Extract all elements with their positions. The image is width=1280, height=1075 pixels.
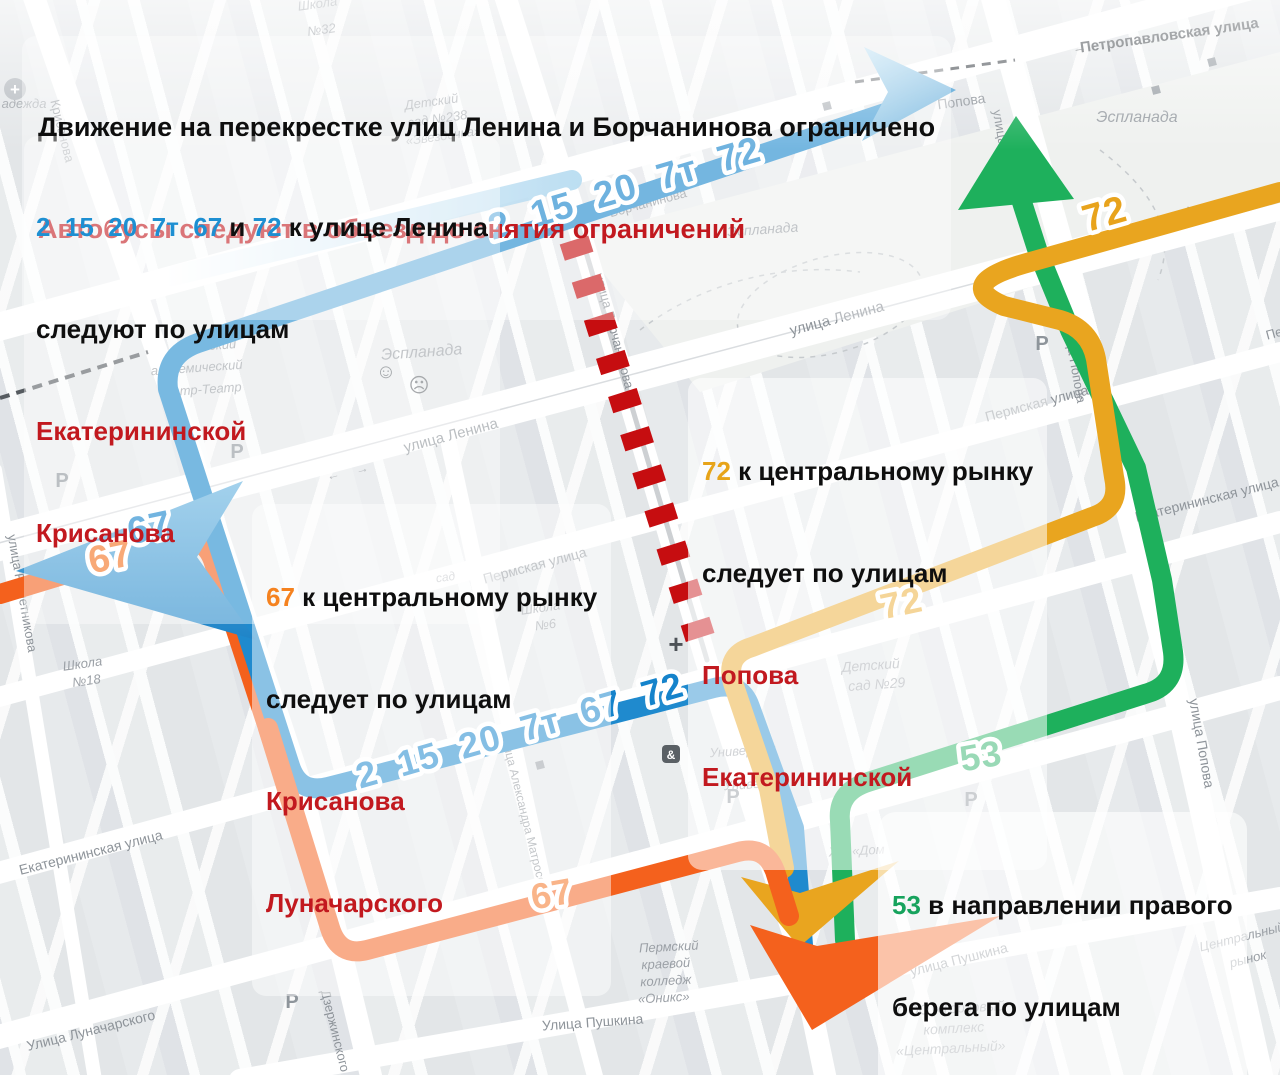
map-label: Пермский xyxy=(639,937,699,955)
street-name: Крисанова xyxy=(266,784,597,818)
notice-line: берега по улицам xyxy=(892,990,1233,1024)
notice-text: к центральному рынку xyxy=(731,456,1033,486)
street-name: Екатерининской xyxy=(702,760,1033,794)
map-label: Пермская xyxy=(1264,313,1280,343)
route-number-67: 67 xyxy=(266,582,295,612)
notice-text: к центральному рынку xyxy=(295,582,597,612)
notice-line: следуют по улицам xyxy=(36,312,488,346)
map-label: краевой xyxy=(641,955,691,973)
conjunction: и xyxy=(222,212,252,242)
notice-line: следует по улицам xyxy=(266,682,597,716)
notice-line: 53 в направлении правого xyxy=(892,888,1233,922)
notice-route-67: 67 к центральному рынку следует по улица… xyxy=(252,504,611,996)
street-name: Екатерининской xyxy=(36,414,488,448)
route-number-72: 72 xyxy=(253,212,282,242)
route-numbers-blue: 2 15 20 7т 67 xyxy=(36,212,222,242)
shop-amp-icon: & xyxy=(667,748,676,762)
street-name: Луначарского xyxy=(266,886,597,920)
route-number-53: 53 xyxy=(892,890,921,920)
notice-route-53: 53 в направлении правого берега по улица… xyxy=(878,812,1247,1075)
notice-text: в направлении правого xyxy=(921,890,1233,920)
map-screenshot: Школа№32Детскийсад №238«Звездочка»адежда… xyxy=(0,0,1280,1075)
notice-line: 72 к центральному рынку xyxy=(702,454,1033,488)
church-cross-icon: + xyxy=(668,629,683,659)
notice-line: 67 к центральному рынку xyxy=(266,580,597,614)
notice-text: к улице Ленина xyxy=(282,212,488,242)
route-number-72: 72 xyxy=(702,456,731,486)
map-label: «Оникс» xyxy=(638,989,690,1007)
notice-line: следует по улицам xyxy=(702,556,1033,590)
notice-line: 2 15 20 7т 67 и 72 к улице Ленина xyxy=(36,210,488,244)
parking-icon: P xyxy=(1035,333,1048,355)
map-label: колледж xyxy=(640,972,693,990)
street-name: Попова xyxy=(702,658,1033,692)
map-label: №18 xyxy=(71,671,102,690)
notice-route-72: 72 к центральному рынку следует по улица… xyxy=(688,378,1047,870)
